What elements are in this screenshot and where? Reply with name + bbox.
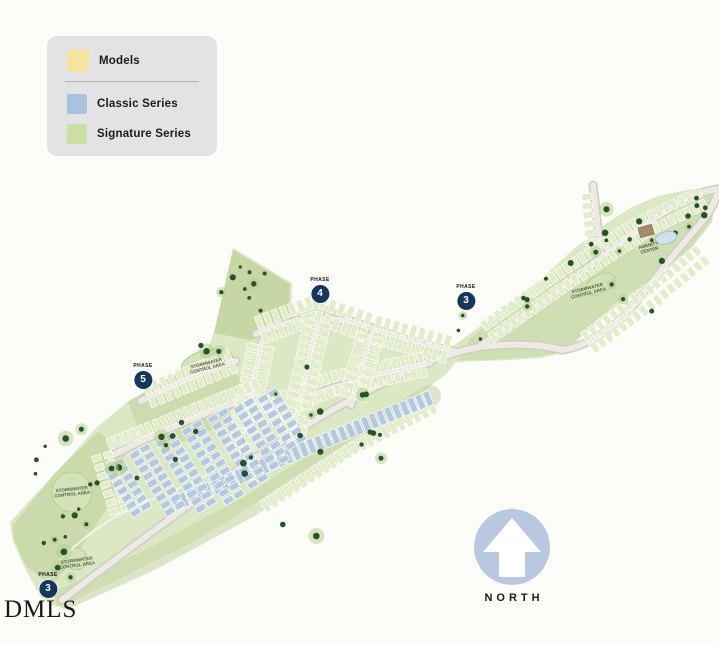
legend-label-signature: Signature Series	[97, 128, 191, 140]
phase-marker-3-south: PHASE 3	[38, 572, 57, 598]
phase-word: PHASE	[133, 363, 152, 369]
legend: Models Classic Series Signature Series	[47, 36, 217, 156]
legend-label-models: Models	[99, 55, 140, 67]
legend-item-classic: Classic Series	[67, 94, 178, 114]
phase-word: PHASE	[38, 572, 57, 578]
legend-divider	[65, 81, 199, 82]
phase-marker-5: PHASE 5	[133, 363, 152, 389]
dmls-watermark: DMLS	[4, 596, 77, 624]
legend-label-classic: Classic Series	[97, 98, 178, 110]
phase-marker-3-east: PHASE 3	[456, 284, 475, 310]
phase-number-badge: 4	[311, 285, 329, 303]
models-swatch-icon	[67, 50, 89, 72]
phase-number-badge: 3	[457, 292, 475, 310]
legend-item-signature: Signature Series	[67, 124, 191, 144]
phase-word: PHASE	[456, 284, 475, 290]
signature-swatch-icon	[67, 124, 87, 144]
legend-item-models: Models	[67, 50, 140, 72]
north-label: NORTH	[480, 592, 543, 604]
phase-number-badge: 5	[134, 371, 152, 389]
site-plan-canvas: Models Classic Series Signature Series P…	[0, 0, 719, 646]
phase-word: PHASE	[310, 277, 329, 283]
classic-swatch-icon	[67, 94, 87, 114]
north-compass: NORTH	[474, 509, 550, 604]
north-arrow-icon	[474, 509, 550, 585]
phase-marker-4: PHASE 4	[310, 277, 329, 303]
